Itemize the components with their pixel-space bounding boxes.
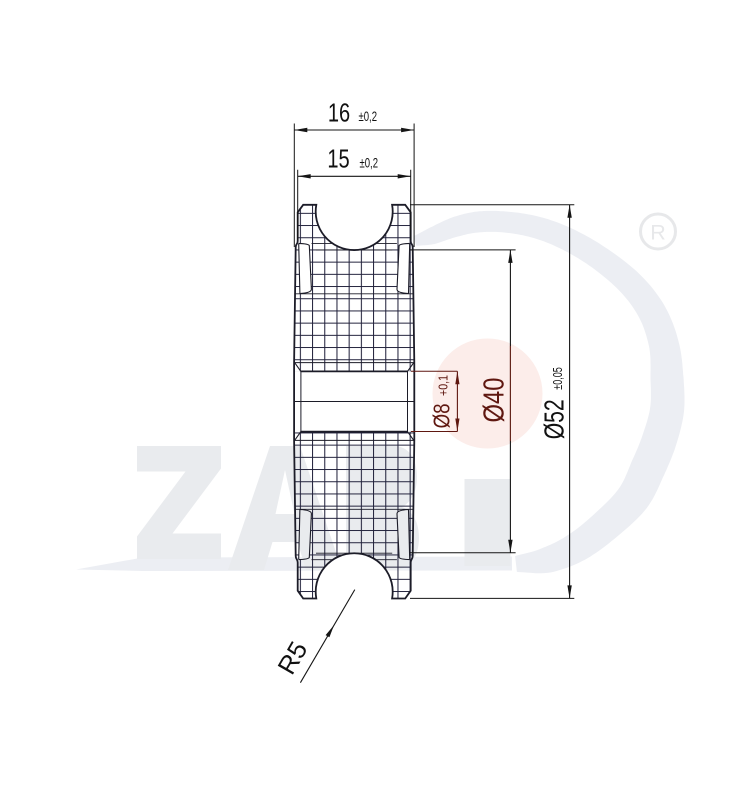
svg-text:Ø52: Ø52 xyxy=(539,399,570,439)
svg-text:15: 15 xyxy=(327,146,349,174)
svg-text:Ø8: Ø8 xyxy=(429,403,455,428)
svg-text:R: R xyxy=(650,221,666,245)
svg-text:±0,2: ±0,2 xyxy=(359,109,378,124)
svg-text:±0,05: ±0,05 xyxy=(550,367,565,390)
svg-text:Ø40: Ø40 xyxy=(479,377,511,422)
svg-text:±0,2: ±0,2 xyxy=(360,155,379,170)
svg-text:+0,1: +0,1 xyxy=(436,375,450,396)
svg-text:16: 16 xyxy=(328,100,350,128)
